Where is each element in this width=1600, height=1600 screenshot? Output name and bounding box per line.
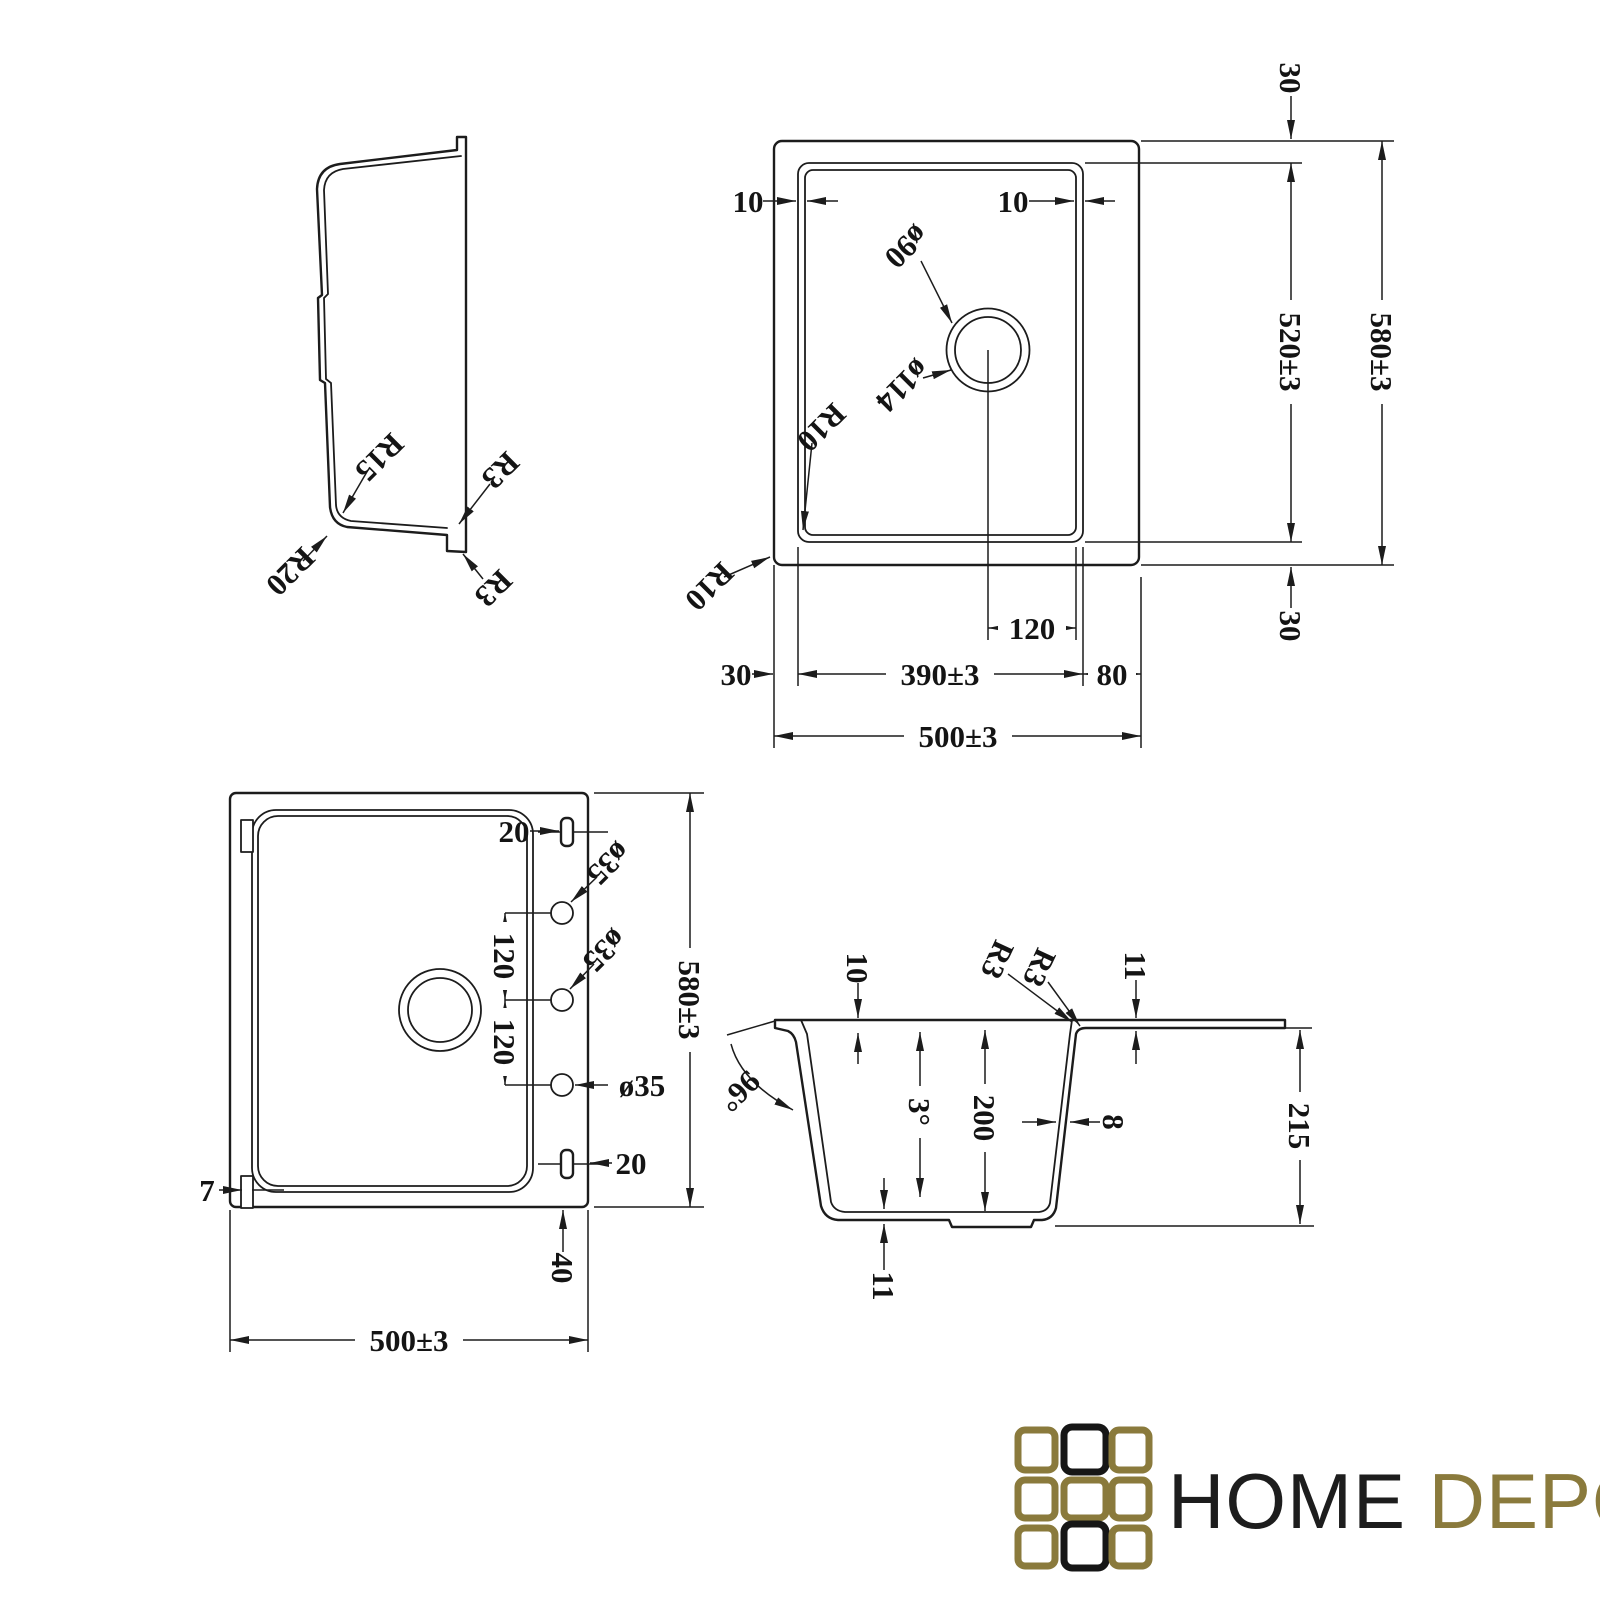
svg-text:520±3: 520±3 (1273, 312, 1308, 391)
top-plan-view: 30 520±3 580±3 30 10 10 ø90 ø114 R10 R10… (678, 63, 1399, 755)
bottom-body-outline-outer (252, 810, 533, 1192)
extension-lines (774, 141, 1394, 748)
brand-logo: HOME DEPO (1018, 1427, 1600, 1568)
radius-label-r15: R15 (348, 426, 411, 489)
svg-text:500±3: 500±3 (918, 719, 997, 754)
bowl-outline-inner (805, 170, 1076, 535)
logo-square (1064, 1480, 1106, 1518)
logo-square (1064, 1524, 1106, 1568)
dim-outer-width-bottom: 500±3 (355, 1323, 463, 1358)
dim-rim-right: 10 (998, 184, 1029, 219)
clip-tab-bottom (241, 1176, 253, 1208)
dim-hole-bottom: ø35 (619, 1068, 666, 1103)
logo-square (1064, 1427, 1106, 1472)
dim-hole-spacing-bottom: 120 (487, 1008, 522, 1076)
drain-circle-inner (408, 978, 472, 1042)
dim-rim-inset: 10 (840, 953, 875, 984)
logo-square (1018, 1528, 1055, 1566)
dim-outer-height: 580±3 (1364, 300, 1399, 404)
dim-wall-angle: 96° (712, 1064, 767, 1119)
dim-tab: 7 (199, 1173, 215, 1208)
dim-left-offset: 30 (721, 657, 752, 692)
side-profile-view: R15 R20 R3 R3 (259, 137, 526, 614)
svg-text:215: 215 (1282, 1103, 1317, 1150)
svg-text:200: 200 (967, 1095, 1002, 1142)
logo-word-depo: DEPO (1429, 1457, 1600, 1545)
dim-outer-width: 500±3 (904, 719, 1012, 754)
mounting-slot-bottom (561, 1150, 573, 1178)
dim-rim-thickness: 11 (1118, 951, 1153, 980)
dim-wall-thickness: 8 (1096, 1114, 1131, 1130)
dim-slot-offset: 40 (545, 1253, 580, 1284)
dim-hole-mid: ø35 (576, 922, 634, 980)
logo-word-home: HOME (1168, 1457, 1406, 1545)
sink-technical-drawing: R15 R20 R3 R3 (0, 0, 1600, 1600)
mounting-hole-bottom (551, 1074, 573, 1096)
logo-grid-icon (1018, 1427, 1149, 1568)
drain-circle-outer (399, 969, 481, 1051)
radius-label-r20: R20 (259, 540, 322, 603)
bowl-outline-outer (798, 163, 1083, 542)
mounting-slot-top (561, 818, 573, 846)
dim-bottom-thickness: 11 (866, 1271, 901, 1300)
logo-square (1112, 1528, 1149, 1566)
logo-square (1112, 1480, 1149, 1518)
extension-lines (727, 1021, 1314, 1226)
dim-bowl-width: 390±3 (886, 657, 994, 692)
dim-total-height: 215 (1282, 1092, 1317, 1160)
dim-draft-angle: 3° (902, 1086, 937, 1138)
dim-right-offset: 80 (1088, 657, 1136, 692)
mounting-hole-mid (551, 989, 573, 1011)
svg-text:80: 80 (1097, 657, 1128, 692)
dim-offset-top: 30 (1273, 63, 1308, 94)
dim-slot-bottom: 20 (616, 1146, 647, 1181)
technical-drawing-canvas: R15 R20 R3 R3 (0, 0, 1600, 1600)
radius-label-outer-corner: R10 (678, 555, 741, 618)
profile-outline-outer (317, 137, 466, 552)
svg-text:500±3: 500±3 (369, 1323, 448, 1358)
dim-slot-top: 20 (499, 814, 530, 849)
bottom-body-outline-inner (258, 816, 527, 1186)
svg-text:120: 120 (487, 933, 522, 980)
radius-label-r3-a: R3 (974, 935, 1022, 984)
mounting-hole-top (551, 902, 573, 924)
sink-outer-outline (774, 141, 1139, 565)
dim-drain-offset: 120 (998, 611, 1066, 646)
dim-bowl-depth: 200 (967, 1084, 1002, 1152)
section-outline-outer (775, 1020, 1285, 1227)
dim-hole-spacing-top: 120 (487, 922, 522, 990)
dim-inner-height: 520±3 (1273, 300, 1308, 404)
dim-drain-hole: ø90 (878, 218, 936, 276)
logo-square (1018, 1430, 1055, 1470)
dim-drain-outer: ø114 (869, 352, 936, 419)
logo-square (1018, 1480, 1055, 1518)
logo-square (1112, 1430, 1149, 1470)
profile-outline-inner (324, 156, 461, 528)
svg-text:3°: 3° (902, 1098, 937, 1126)
clip-tab-top (241, 820, 253, 852)
bottom-plan-view: 120 120 ø35 ø35 ø35 20 20 580±3 7 40 500… (199, 793, 707, 1358)
svg-text:580±3: 580±3 (672, 960, 707, 1039)
section-view: 10 R3 R3 11 96° 3° 200 8 215 11 (712, 935, 1317, 1300)
dim-rim-left: 10 (733, 184, 764, 219)
logo-wordmark: HOME DEPO (1168, 1457, 1600, 1545)
dim-offset-bottom: 30 (1273, 611, 1308, 642)
radius-label-r3-upper: R3 (475, 445, 527, 497)
svg-text:390±3: 390±3 (900, 657, 979, 692)
radius-label-bowl-corner: R10 (790, 396, 853, 459)
svg-text:120: 120 (487, 1019, 522, 1066)
svg-text:580±3: 580±3 (1364, 312, 1399, 391)
svg-text:120: 120 (1009, 611, 1056, 646)
dim-outer-height-bottom: 580±3 (672, 948, 707, 1052)
